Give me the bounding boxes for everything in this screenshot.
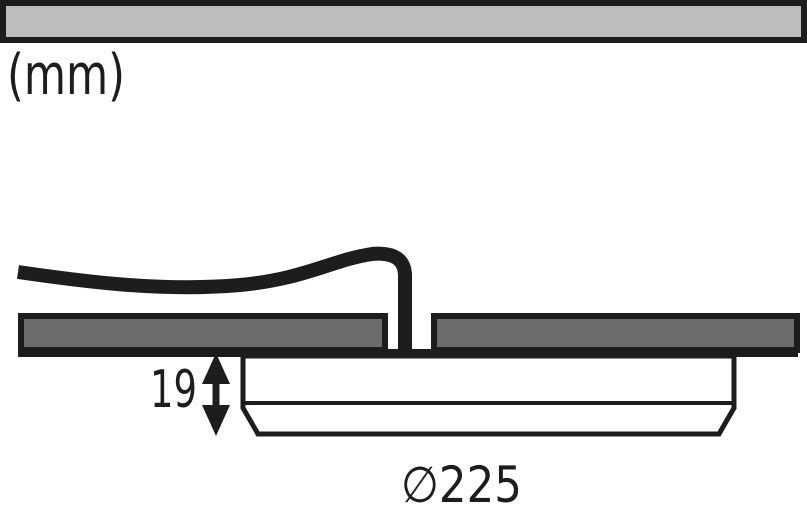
height-dimension-label: 19: [150, 360, 197, 420]
ceiling-underside-line: [18, 349, 798, 357]
diameter-dimension-label: ∅225: [401, 456, 522, 514]
ceiling-panel-left: [21, 316, 385, 350]
luminaire-body: [243, 356, 734, 434]
installation-diagram-canvas: (mm) 19 ∅225: [0, 0, 807, 528]
double-arrow-icon: [202, 353, 230, 436]
unit-label: (mm): [7, 43, 125, 108]
mounting-surface: [3, 3, 804, 40]
ceiling-panel-right: [434, 316, 797, 350]
installation-diagram: (mm) 19 ∅225: [0, 0, 807, 528]
